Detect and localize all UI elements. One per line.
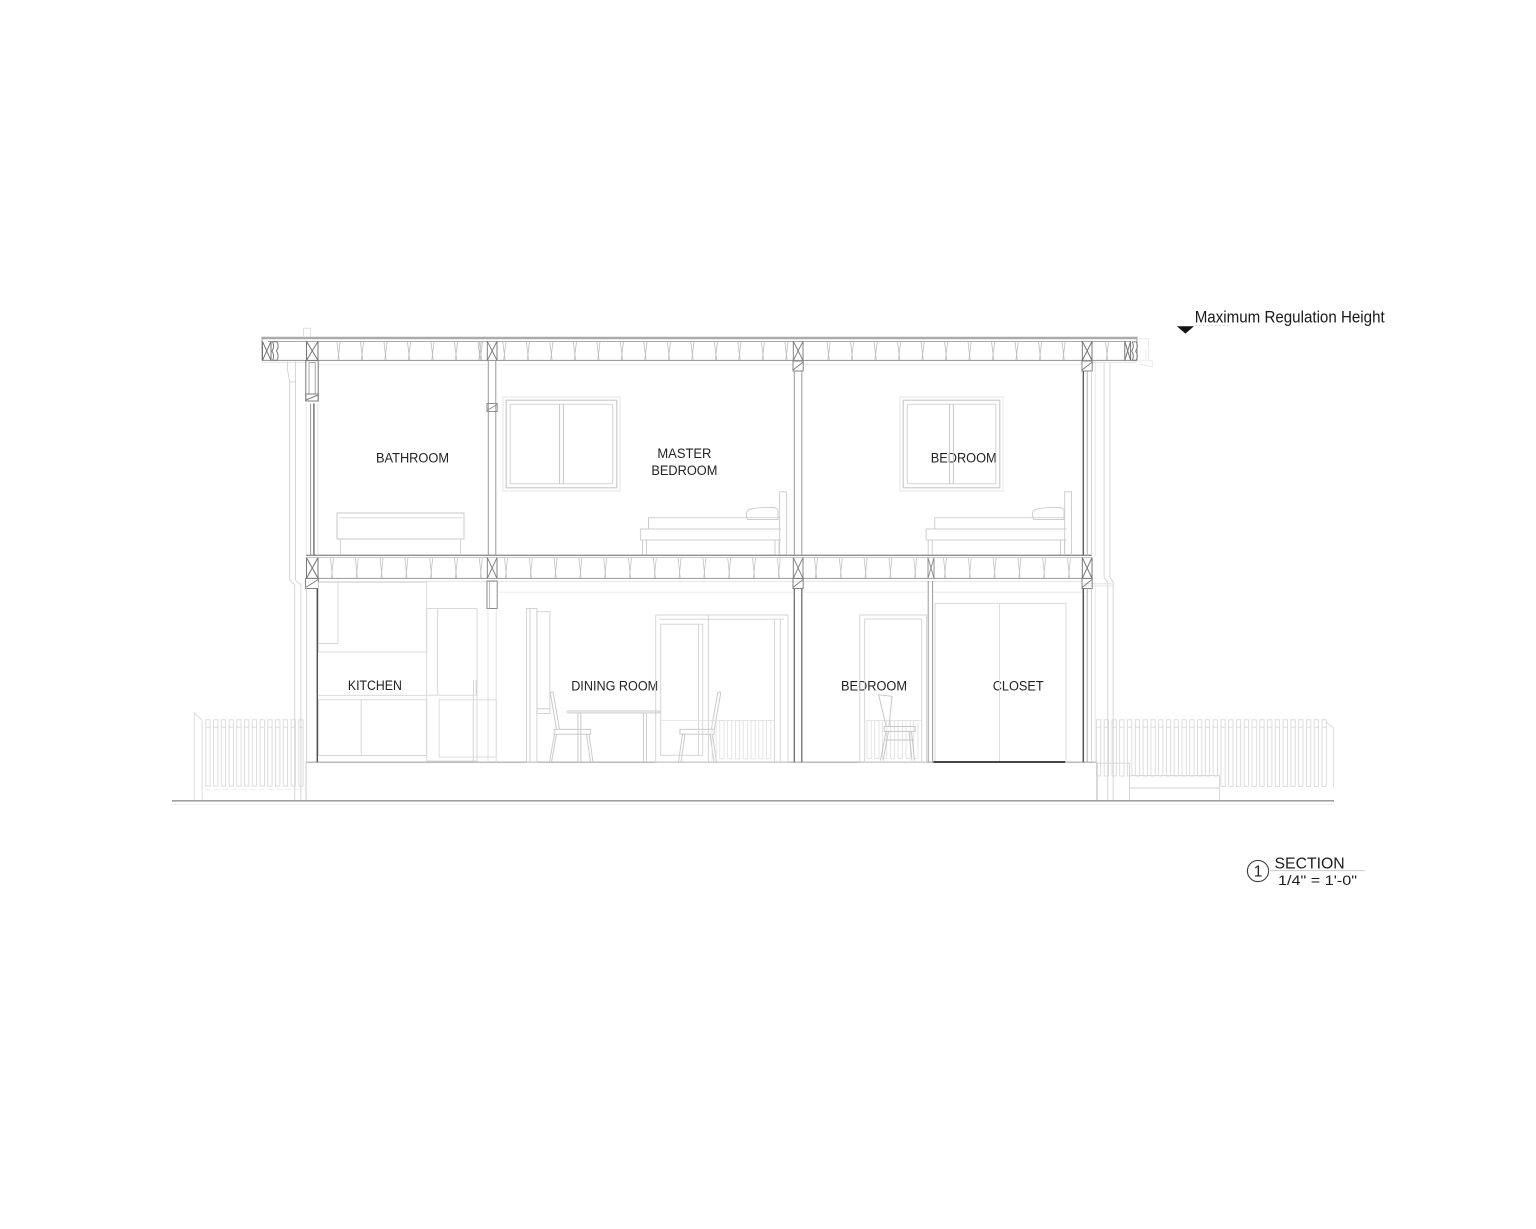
svg-text:1/4" = 1'-0": 1/4" = 1'-0" <box>1278 873 1357 889</box>
svg-text:BATHROOM: BATHROOM <box>376 451 449 467</box>
svg-text:DINING ROOM: DINING ROOM <box>571 678 658 694</box>
svg-text:SECTION: SECTION <box>1275 856 1345 873</box>
svg-text:1: 1 <box>1254 864 1263 881</box>
svg-text:CLOSET: CLOSET <box>993 678 1044 694</box>
svg-text:BEDROOM: BEDROOM <box>841 678 907 694</box>
svg-text:KITCHEN: KITCHEN <box>348 678 402 694</box>
svg-text:MASTER: MASTER <box>657 446 711 462</box>
svg-text:Maximum Regulation Height: Maximum Regulation Height <box>1195 307 1385 326</box>
svg-text:BEDROOM: BEDROOM <box>651 463 717 479</box>
svg-text:BEDROOM: BEDROOM <box>931 451 997 467</box>
